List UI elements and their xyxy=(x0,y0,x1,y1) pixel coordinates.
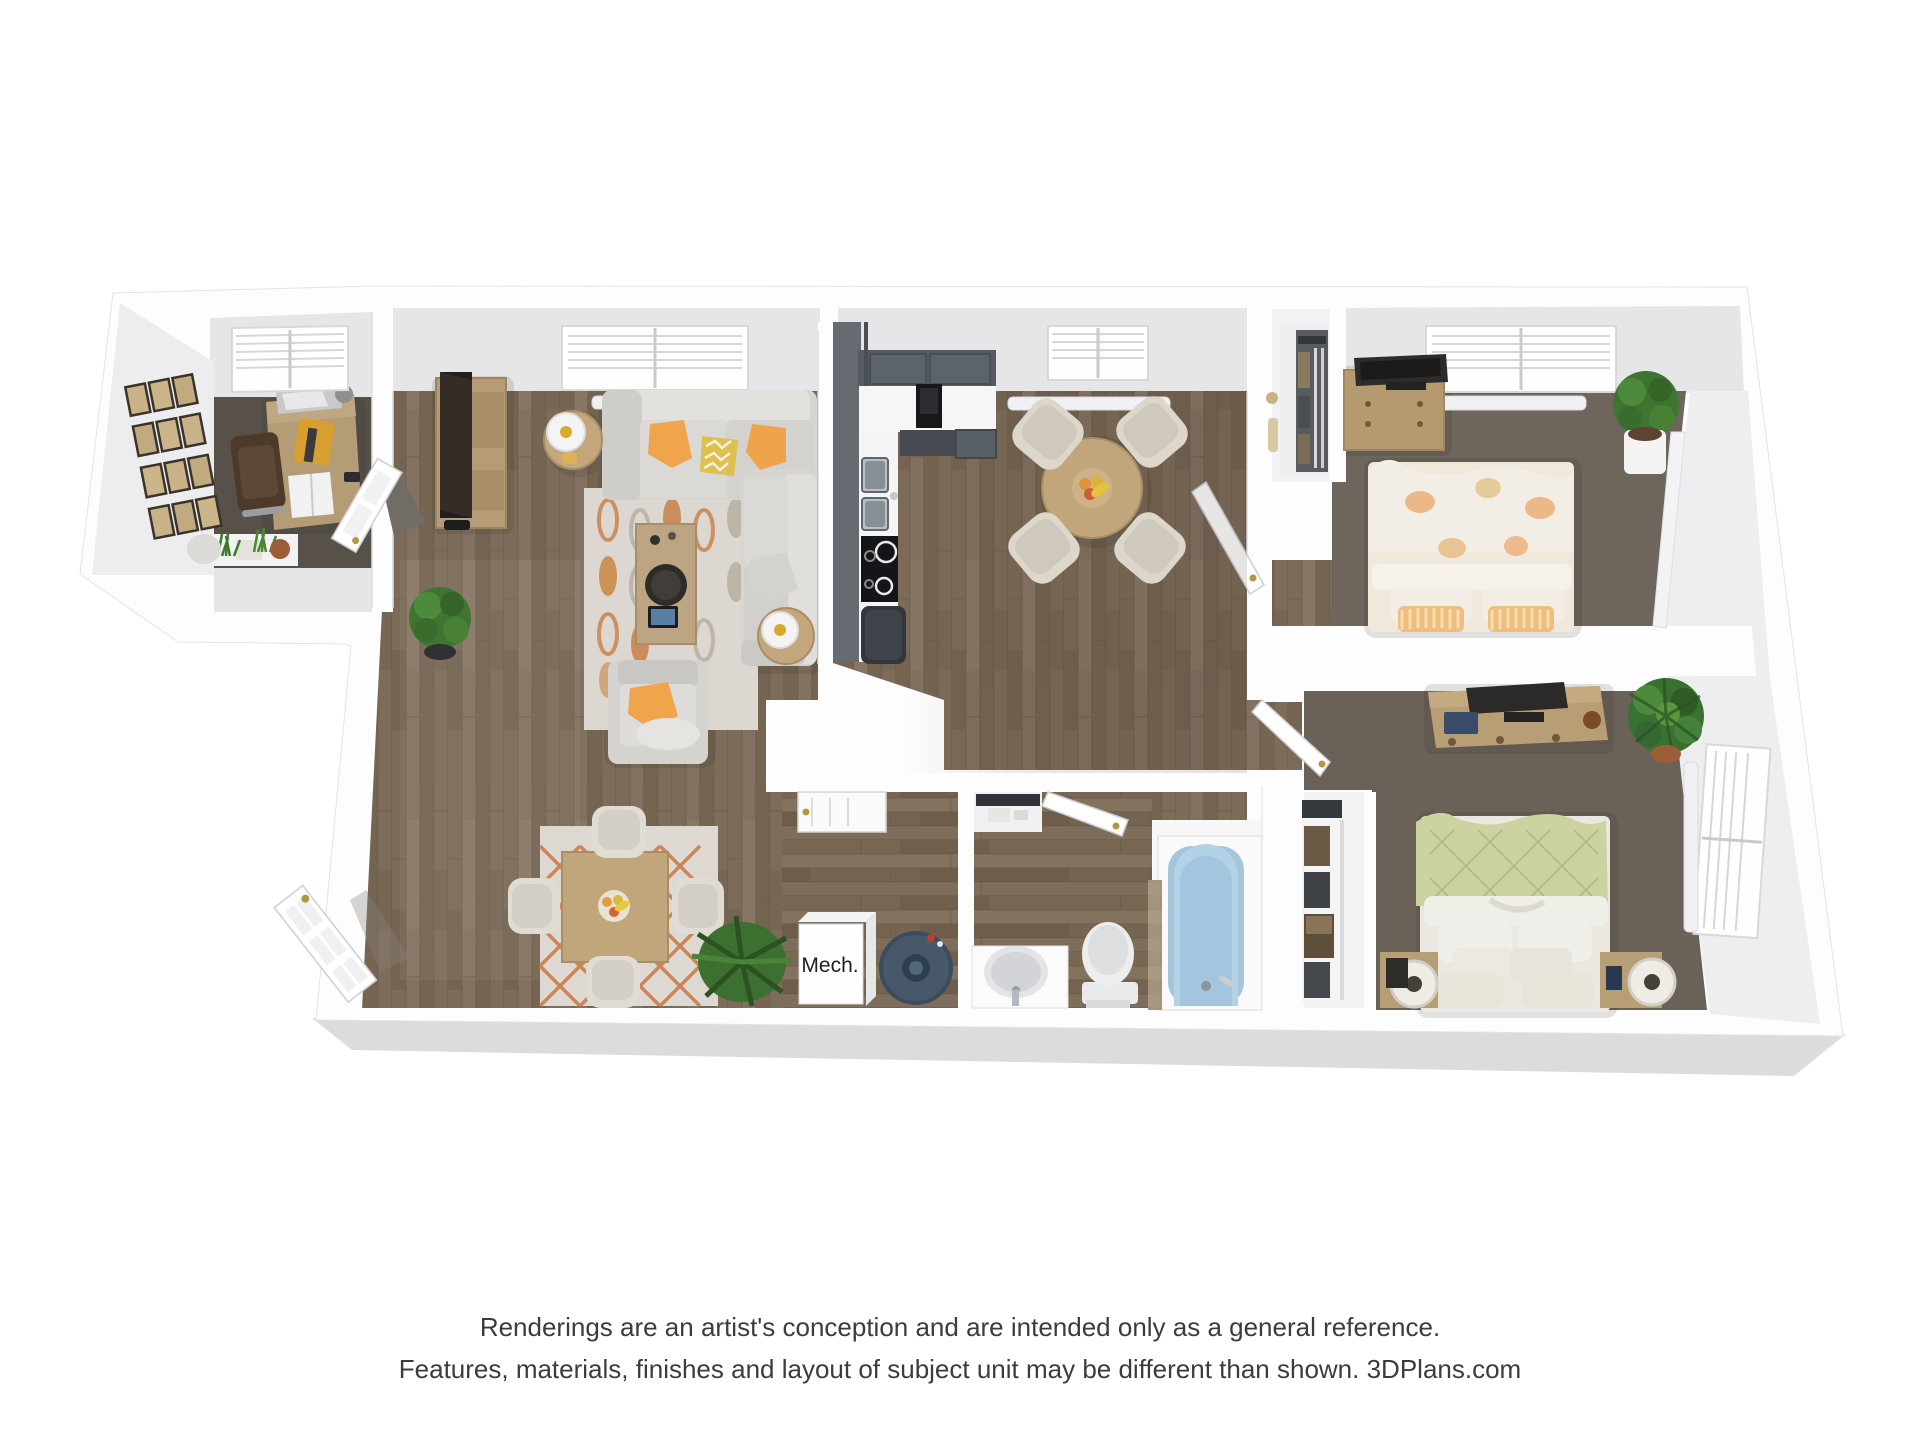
svg-text:Renderings are an artist's con: Renderings are an artist's conception an… xyxy=(480,1312,1440,1342)
svg-text:Features, materials, finishes: Features, materials, finishes and layout… xyxy=(399,1354,1521,1384)
svg-text:Mech.: Mech. xyxy=(801,954,858,977)
